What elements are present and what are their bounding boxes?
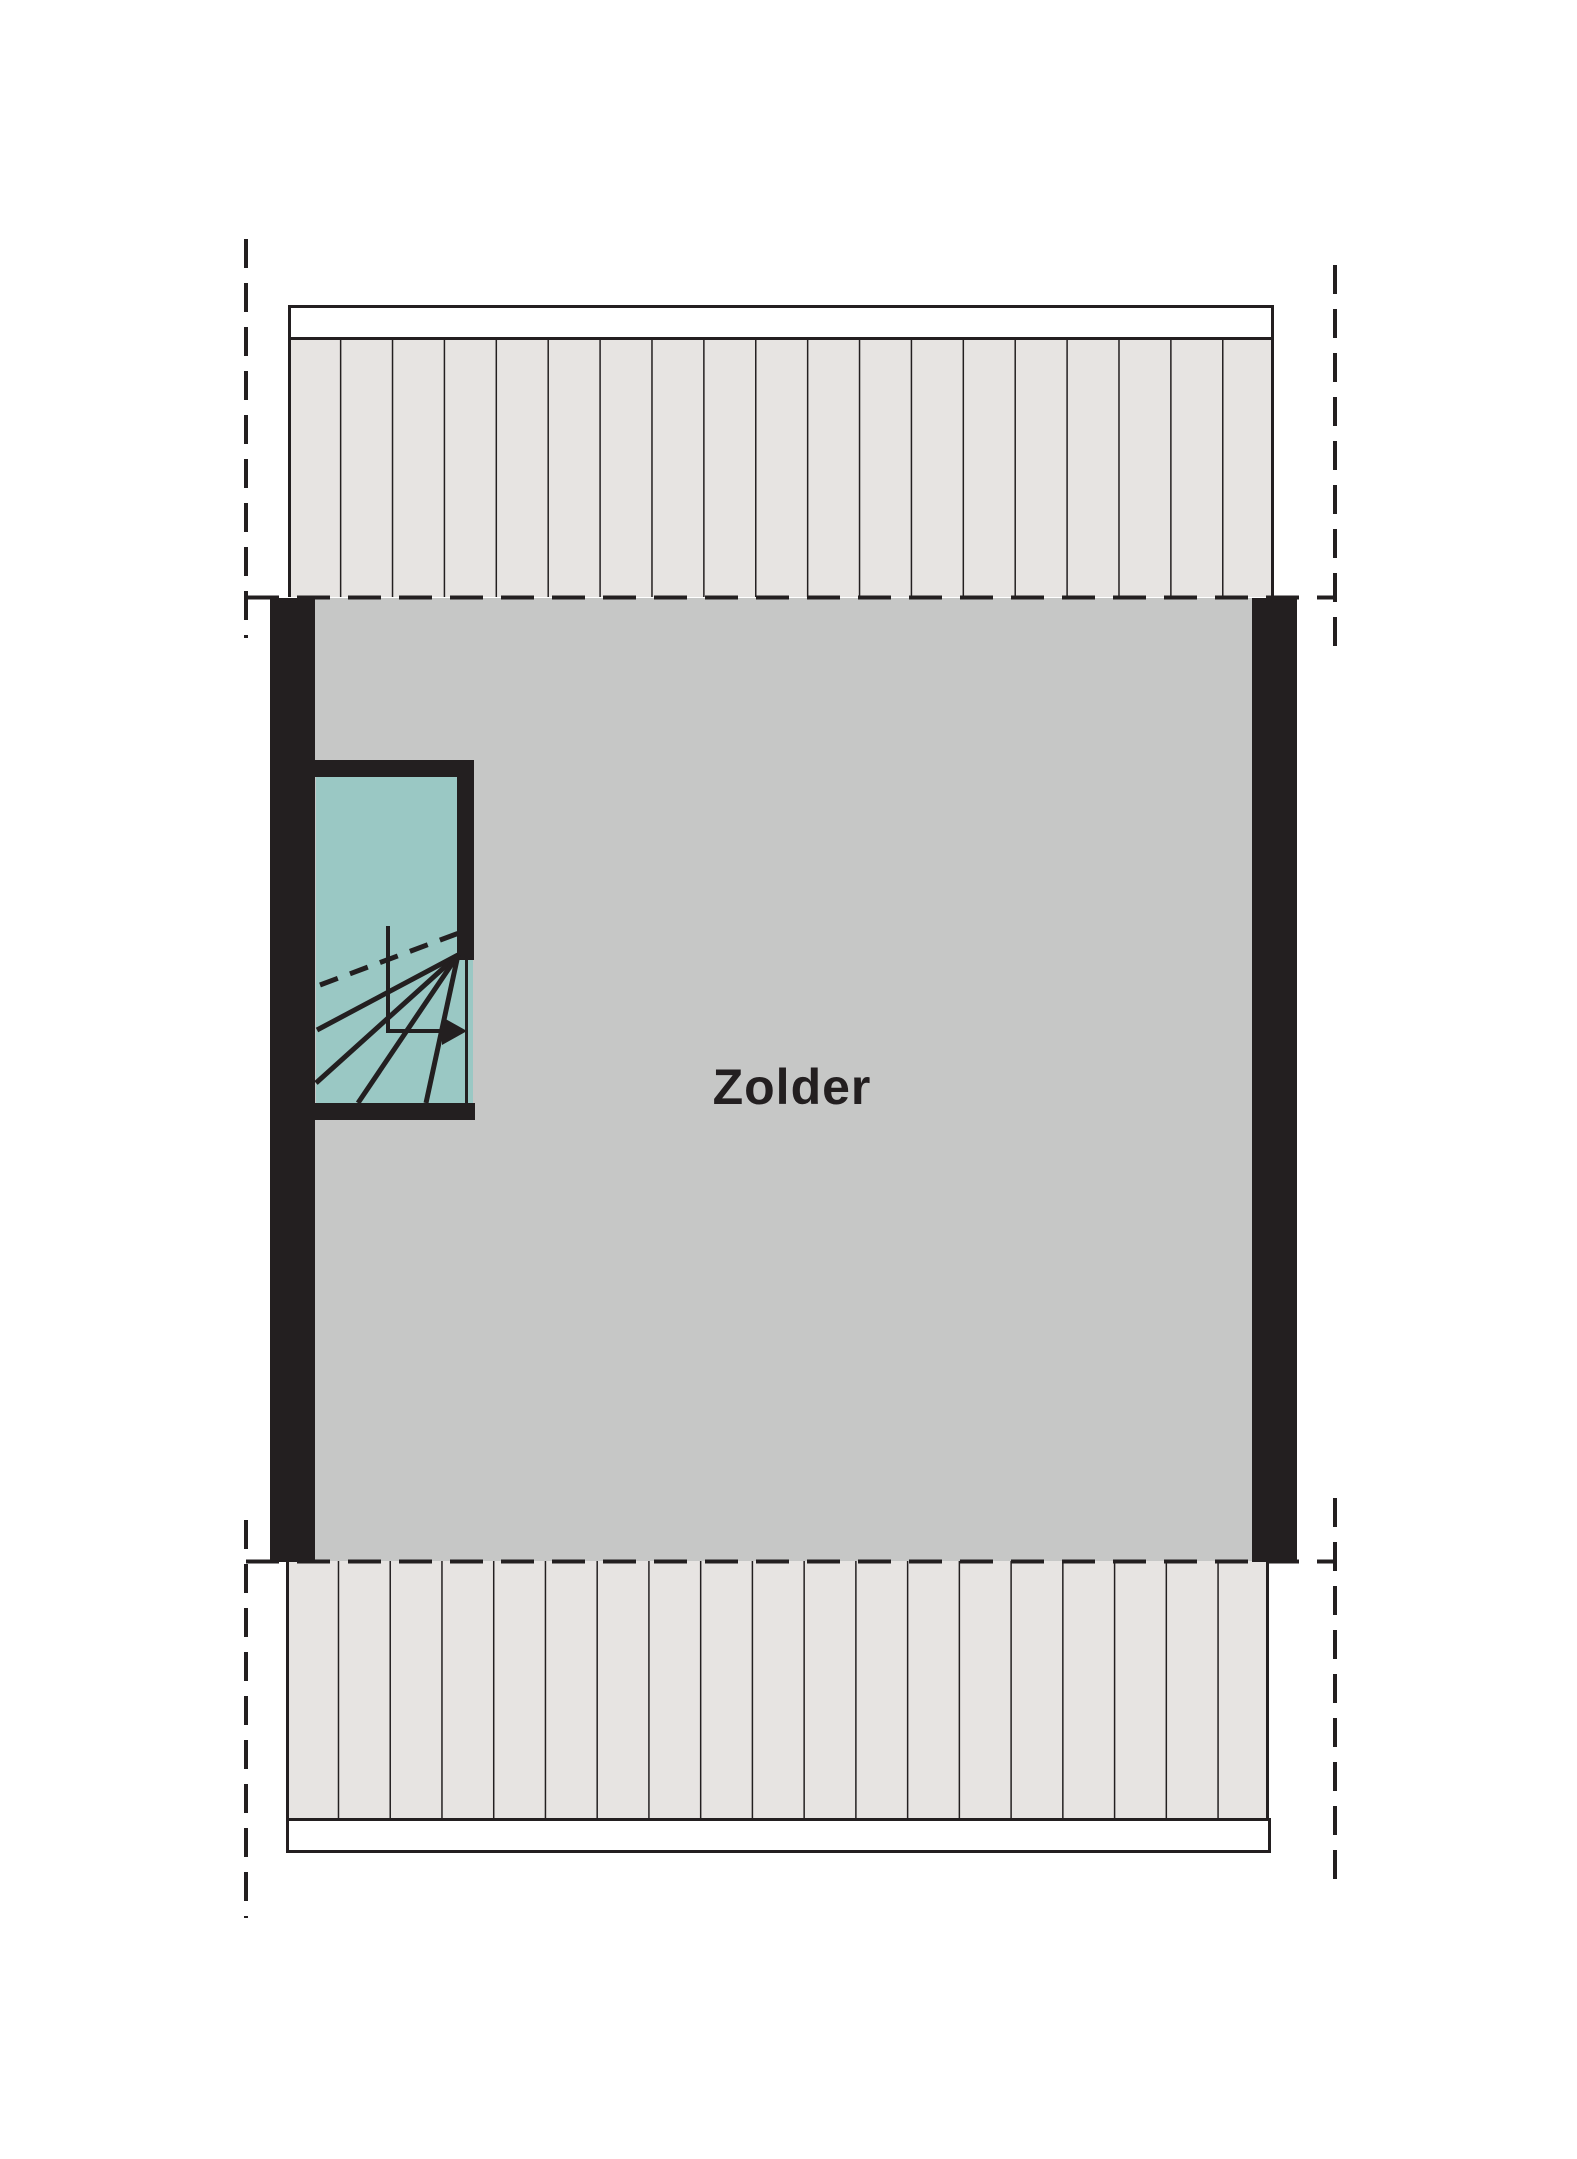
stair-wall-top — [315, 760, 473, 777]
roof-hatch-lines-top — [288, 339, 1274, 597]
room-label: Zolder — [713, 1059, 872, 1115]
wall-right — [1252, 598, 1297, 1562]
eaves-bar-top — [290, 307, 1273, 339]
staircase — [315, 760, 475, 1120]
stair-wall-right-stub — [457, 760, 474, 960]
wall-left — [270, 598, 315, 1562]
roof-slope-section-top — [288, 307, 1274, 598]
eaves-bar-bottom — [288, 1820, 1270, 1852]
floorplan-canvas: Zolder — [0, 0, 1577, 2159]
stair-wall-bottom — [315, 1103, 475, 1120]
roof-slope-section-bottom — [286, 1561, 1270, 1852]
stair-opening — [316, 777, 473, 1103]
roof-hatch-lines-bottom — [286, 1561, 1269, 1818]
floorplan-drawing: Zolder — [0, 0, 1577, 2159]
